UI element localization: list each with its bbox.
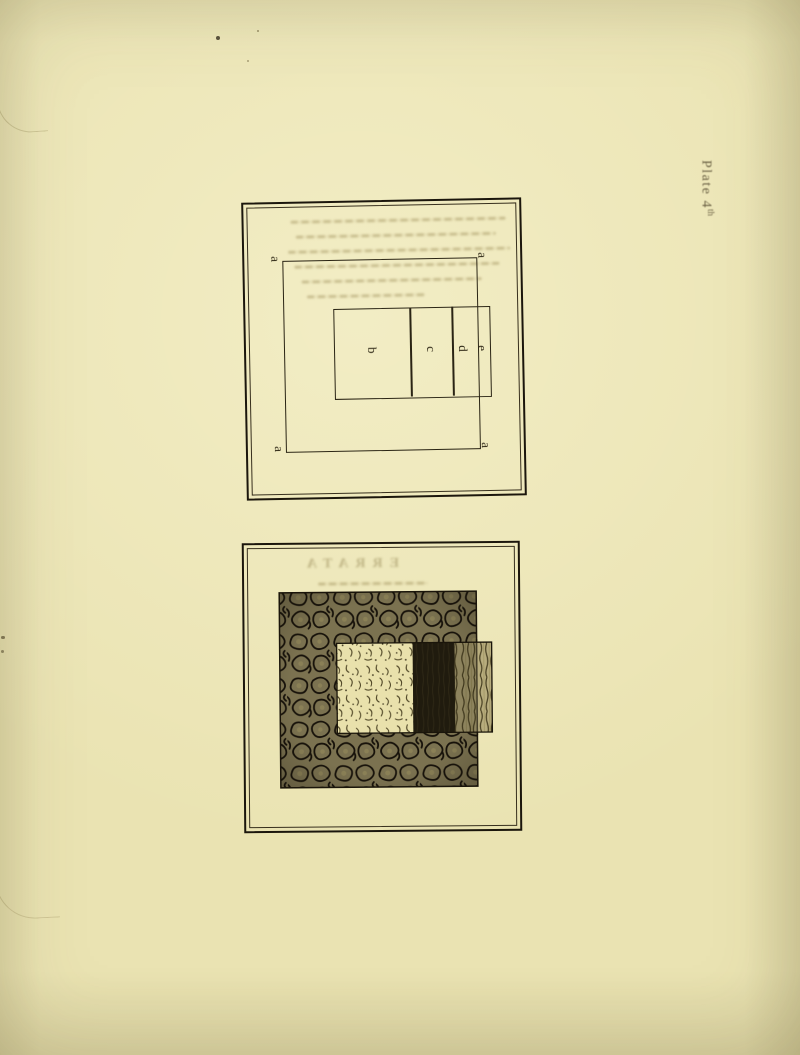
ink-speck xyxy=(247,60,249,62)
section-d-overlap-shade xyxy=(455,642,478,732)
figure1-plate: a a a a b c d e xyxy=(241,197,527,500)
page-vignette xyxy=(0,0,800,1055)
label-a-bottom-right: a xyxy=(479,438,493,452)
ink-speck xyxy=(216,36,220,40)
paper-crease-top-left xyxy=(0,94,48,134)
square-edge-through-rectangle xyxy=(477,639,478,735)
label-a-top-right: a xyxy=(475,248,489,262)
section-c-black xyxy=(413,642,456,732)
label-b: b xyxy=(365,343,379,357)
figure2-engraving xyxy=(242,541,523,833)
plate-caption-ordinal: th xyxy=(706,209,716,216)
ink-speck xyxy=(257,30,259,32)
section-b-stipple xyxy=(337,643,414,734)
label-e: e xyxy=(475,341,489,355)
label-a-bottom-left: a xyxy=(272,442,286,456)
plate-caption: Plate 4th xyxy=(688,160,718,260)
label-d: d xyxy=(456,341,470,355)
edge-mark xyxy=(1,636,5,639)
plate-caption-text: Plate 4th xyxy=(697,160,716,216)
paper-crease-bottom-left xyxy=(0,874,60,920)
edge-mark xyxy=(1,650,4,653)
label-a-top-left: a xyxy=(268,252,282,266)
scanned-book-plate-page: { "page": { "caption": { "text": "Plate … xyxy=(0,0,800,1055)
plate-caption-main: Plate 4 xyxy=(698,160,713,209)
figure2-plate: ERRATA xyxy=(242,541,523,833)
label-c: c xyxy=(424,342,438,356)
